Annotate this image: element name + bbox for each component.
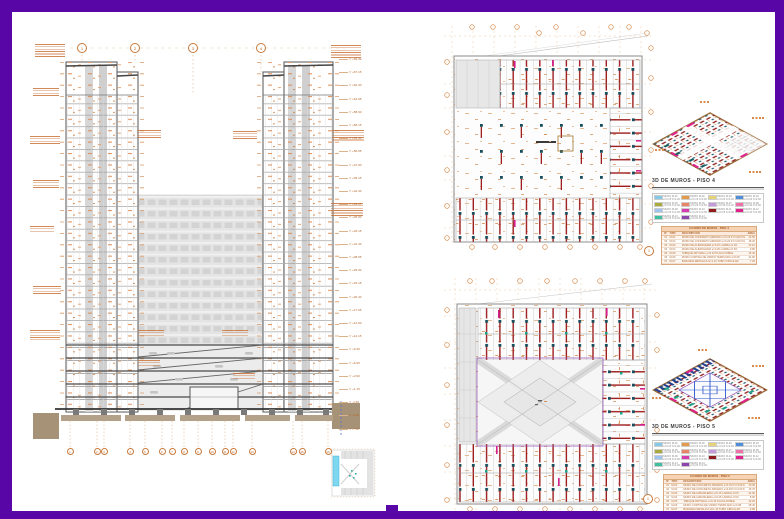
legend-sub-line: e=0.30 h=3.00 [744, 459, 761, 462]
grid-bubble: 3 [188, 43, 198, 53]
axon-leader-label [698, 349, 708, 351]
note-block [30, 226, 54, 233]
level-value: ▽ +42.40 [349, 190, 361, 193]
level-leader [339, 72, 348, 73]
level-marker: ▽ +64.40 [339, 84, 373, 87]
legend-swatch [682, 203, 689, 206]
grid-bubble: 10 [209, 448, 216, 455]
level-value: ▽ +69.90 [349, 58, 361, 61]
pool-shape [333, 456, 339, 486]
legend-item: MURO M-04e=0.20 h=2.60 [736, 196, 761, 201]
level-marker: ▽ +14.90 [339, 322, 373, 325]
legend-swatch [736, 443, 743, 446]
legend-label: MURO M-02e=0.15 h=2.60 [690, 196, 707, 201]
drawing-sheet: 3D DE MUROS - PISO 4 3D DE MUROS - PISO … [0, 0, 784, 519]
table-cell: 04 [662, 248, 670, 251]
table-cell: 06 [664, 504, 671, 507]
level-marker: ▽ -1.60 [339, 401, 373, 404]
table-cell: M-06 [671, 504, 683, 507]
level-leader [339, 125, 348, 126]
table-cell: 15.40 [745, 252, 756, 255]
level-leader [339, 297, 348, 298]
legend-item: MURO M-08e=0.30 h=2.60 [736, 450, 761, 455]
level-value: ▽ +34.15 [349, 230, 361, 233]
legend-item: MURO M-06e=0.25 h=2.60 [682, 203, 707, 208]
legend-swatch [736, 196, 743, 199]
detail-marker: 1 [643, 494, 653, 504]
level-marker: ▽ +47.90 [339, 164, 373, 167]
axon-title-piso-4: 3D DE MUROS - PISO 4 [652, 178, 715, 184]
legend-swatch [736, 209, 743, 212]
level-leader [339, 349, 348, 350]
level-leader [339, 283, 348, 284]
table-cell: 01 [662, 236, 670, 239]
legend-item: MURO M-10e=0.20 h=3.00 [682, 456, 707, 461]
level-marker: ▽ +6.65 [339, 362, 373, 365]
legend-label: MURO M-14e=0.20 h=3.20 [690, 216, 707, 221]
floor-plan-piso-5 [440, 272, 665, 517]
sheet-border-top [0, 0, 784, 12]
legend-label: MURO M-01e=0.15 h=2.40 [663, 196, 680, 201]
axon-leader-label [749, 171, 761, 173]
legend-label: MURO M-09e=0.15 h=3.00 [663, 209, 680, 214]
legend-swatch [709, 443, 716, 446]
level-marker: ▽ -4.35 [339, 414, 373, 417]
legend-item: MURO M-13e=0.15 h=3.20 [655, 463, 680, 468]
legend-label: MURO M-04e=0.20 h=2.60 [744, 196, 761, 201]
level-value: ▽ +14.90 [349, 322, 361, 325]
legend-item: MURO M-13e=0.15 h=3.20 [655, 216, 680, 221]
level-marker: ▽ +17.65 [339, 309, 373, 312]
table-cell: M-02 [671, 488, 683, 491]
note-block [30, 136, 60, 145]
legend-swatch [709, 450, 716, 453]
level-value: ▽ +28.65 [349, 256, 361, 259]
table-cell: 22.10 [745, 244, 756, 247]
grid-bubble: 13 [249, 448, 256, 455]
sheet-border-left [0, 0, 12, 519]
legend-swatch [709, 196, 716, 199]
table-cell: 12.50 [745, 236, 756, 239]
level-marker: ▽ +20.40 [339, 296, 373, 299]
table-cell: 06 [662, 256, 670, 259]
legend-item: MURO M-07e=0.30 h=2.40 [709, 203, 734, 208]
level-value: ▽ +25.90 [349, 269, 361, 272]
axon-leader-label [700, 101, 710, 103]
wall-legend-top: MURO M-01e=0.15 h=2.40MURO M-02e=0.15 h=… [652, 193, 764, 223]
level-value: ▽ +1.15 [349, 388, 360, 391]
level-marker: ▽ +34.15 [339, 230, 373, 233]
legend-swatch [655, 456, 662, 459]
legend-label: MURO M-13e=0.15 h=3.20 [663, 463, 680, 468]
table-cell: 18.20 [745, 240, 756, 243]
level-marker: ▽ +67.15 [339, 71, 373, 74]
legend-label: MURO M-09e=0.15 h=3.00 [663, 456, 680, 461]
legend-swatch [709, 209, 716, 212]
legend-item: MURO M-03e=0.20 h=2.40 [709, 443, 734, 448]
grid-bubble: 2 [94, 448, 101, 455]
legend-label: MURO M-07e=0.30 h=2.40 [717, 203, 734, 208]
table-row: 07M-07BARANDA METALICA H=1.10 TUBO CIRCU… [662, 260, 756, 264]
level-value: ▽ +20.40 [349, 296, 361, 299]
legend-item: MURO M-04e=0.20 h=2.60 [736, 443, 761, 448]
legend-label: MURO M-05e=0.25 h=2.40 [663, 203, 680, 208]
note-block [138, 330, 164, 337]
table-cell: 03 [662, 244, 670, 247]
legend-sub-line: e=0.15 h=3.20 [663, 465, 680, 468]
legend-swatch [655, 196, 662, 199]
level-leader [339, 336, 348, 337]
level-value: ▽ +58.90 [349, 111, 361, 114]
table-cell: 05 [664, 500, 671, 503]
level-marker: ▽ +69.90 [339, 58, 373, 61]
level-value: ▽ +39.65 [349, 203, 361, 206]
level-leader [339, 389, 348, 390]
level-value: ▽ +61.65 [349, 98, 361, 101]
legend-item: MURO M-07e=0.30 h=2.40 [709, 450, 734, 455]
level-value: ▽ +9.40 [349, 348, 360, 351]
detail-marker: 1 [644, 246, 654, 256]
grid-bubble: 9 [195, 448, 202, 455]
table-header-cell: DESCRIPCIÓN [683, 480, 745, 483]
axon-title-piso-5: 3D DE MUROS - PISO 5 [652, 424, 715, 430]
grid-bubble: 1 [77, 43, 87, 53]
title-rule [652, 187, 764, 188]
table-cell: 7.25 [745, 260, 756, 263]
table-header-cell: TIPO [670, 232, 682, 235]
legend-swatch [655, 209, 662, 212]
level-leader [339, 270, 348, 271]
table-cell: MURO DE ALBAÑILERIA e=0.15 LADRILLO KK [682, 244, 745, 247]
level-marker: ▽ +45.15 [339, 177, 373, 180]
grid-bubble: 12 [230, 448, 237, 455]
table-cell: MURO CORTINA DE VIDRIO TEMPLADO e=0.08 [682, 256, 745, 259]
table-cell: M-06 [670, 256, 682, 259]
note-block [33, 286, 61, 294]
table-cell: M-01 [671, 484, 683, 487]
level-value: ▽ +17.65 [349, 309, 361, 312]
level-leader [339, 376, 348, 377]
left-tower [62, 62, 142, 412]
wall-table-bottom: CUADRO DE MUROS - PISO 5N°TIPODESCRIPCIÓ… [663, 474, 757, 513]
legend-swatch [655, 450, 662, 453]
level-marker: ▽ +42.40 [339, 190, 373, 193]
legend-label: MURO M-03e=0.20 h=2.40 [717, 443, 734, 448]
legend-swatch [682, 456, 689, 459]
level-leader [339, 138, 348, 139]
table-cell: MURO DE ALBAÑILERIA e=0.25 LADRILLO KK [683, 496, 745, 499]
axon-leader-label [748, 417, 760, 419]
level-value: ▽ +12.15 [349, 335, 361, 338]
legend-item: MURO M-05e=0.25 h=2.40 [655, 203, 680, 208]
table-cell: 24.60 [745, 492, 756, 495]
table-cell: 04 [664, 496, 671, 499]
table-cell: M-02 [670, 240, 682, 243]
table-header-cell: ÁREA [745, 232, 756, 235]
table-header-cell: TIPO [671, 480, 683, 483]
level-marker: ▽ +56.15 [339, 124, 373, 127]
legend-swatch [682, 450, 689, 453]
note-block [35, 44, 65, 57]
note-block [137, 130, 161, 139]
axon-leader-label [752, 365, 764, 367]
legend-swatch [682, 196, 689, 199]
legend-sub-line: e=0.25 h=3.00 [717, 459, 734, 462]
legend-label: MURO M-07e=0.30 h=2.40 [717, 450, 734, 455]
key-plan [331, 444, 377, 498]
level-marker: ▽ +50.65 [339, 150, 373, 153]
level-value: ▽ +31.40 [349, 243, 361, 246]
level-leader [339, 415, 348, 416]
legend-label: MURO M-08e=0.30 h=2.60 [744, 203, 761, 208]
table-cell: 16.75 [745, 488, 756, 491]
table-cell: MURO DE CONCRETO ARMADO e=0.15 F'C=210 K… [682, 236, 745, 239]
legend-swatch [736, 203, 743, 206]
table-cell: MURO DE CONCRETO ARMADO e=0.20 F'C=210 K… [682, 240, 745, 243]
legend-label: MURO M-01e=0.15 h=2.40 [663, 443, 680, 448]
legend-swatch [655, 443, 662, 446]
level-value: ▽ +64.40 [349, 84, 361, 87]
legend-item: MURO M-09e=0.15 h=3.00 [655, 209, 680, 214]
legend-label: MURO M-11e=0.25 h=3.00 [717, 456, 734, 461]
building-section-drawing [25, 35, 445, 505]
legend-item: MURO M-06e=0.25 h=2.60 [682, 450, 707, 455]
legend-item: MURO M-02e=0.15 h=2.60 [682, 443, 707, 448]
legend-item: MURO M-03e=0.20 h=2.40 [709, 196, 734, 201]
legend-item: MURO M-12e=0.30 h=3.00 [736, 456, 761, 461]
legend-item: MURO M-01e=0.15 h=2.40 [655, 196, 680, 201]
level-value: ▽ +23.15 [349, 282, 361, 285]
legend-label: MURO M-05e=0.25 h=2.40 [663, 450, 680, 455]
legend-label: MURO M-02e=0.15 h=2.60 [690, 443, 707, 448]
grid-bubble: 8 [181, 448, 188, 455]
level-leader [339, 204, 348, 205]
table-cell: TABIQUE DRYWALL e=0.10 PLACA DOBLE [682, 252, 745, 255]
legend-item: MURO M-08e=0.30 h=2.60 [736, 203, 761, 208]
sheet-border-tab [386, 505, 398, 513]
note-block [33, 88, 59, 96]
legend-swatch [682, 216, 689, 219]
table-cell: MURO DE CONCRETO ARMADO e=0.20 F'C=210 K… [683, 488, 745, 491]
level-marker: ▽ +23.15 [339, 282, 373, 285]
legend-sub-line: e=0.15 h=3.20 [663, 218, 680, 221]
level-leader [339, 429, 348, 430]
level-marker: ▽ +28.65 [339, 256, 373, 259]
axon-leader-label [655, 149, 665, 151]
level-value: ▽ -7.10 [349, 428, 359, 431]
legend-swatch [682, 209, 689, 212]
level-value: ▽ +53.40 [349, 137, 361, 140]
table-cell: 05 [662, 252, 670, 255]
legend-sub-line: e=0.30 h=3.00 [744, 212, 761, 215]
table-cell: M-05 [671, 500, 683, 503]
legend-swatch [655, 203, 662, 206]
level-value: ▽ +47.90 [349, 164, 361, 167]
axon-leader-label [652, 397, 662, 399]
level-leader [339, 191, 348, 192]
legend-label: MURO M-10e=0.20 h=3.00 [690, 209, 707, 214]
note-block [138, 360, 160, 366]
level-value: ▽ +6.65 [349, 362, 360, 365]
level-leader [339, 85, 348, 86]
legend-item: MURO M-05e=0.25 h=2.40 [655, 450, 680, 455]
legend-swatch [709, 456, 716, 459]
grid-bubble: 3 [101, 448, 108, 455]
table-cell: M-04 [671, 496, 683, 499]
table-cell: M-04 [670, 248, 682, 251]
table-cell: 03 [664, 492, 671, 495]
grid-bubble: 4 [256, 43, 266, 53]
table-cell: 13.20 [745, 500, 756, 503]
legend-item: MURO M-09e=0.15 h=3.00 [655, 456, 680, 461]
legend-item: MURO M-14e=0.20 h=3.20 [682, 216, 707, 221]
grid-bubble: 5 [142, 448, 149, 455]
legend-swatch [682, 463, 689, 466]
table-header-cell: N° [662, 232, 670, 235]
legend-label: MURO M-06e=0.25 h=2.60 [690, 203, 707, 208]
grid-bubble: 6 [159, 448, 166, 455]
axon-3d-piso-5 [645, 346, 775, 434]
level-leader [339, 323, 348, 324]
level-marker: ▽ +53.40 [339, 137, 373, 140]
legend-label: MURO M-06e=0.25 h=2.60 [690, 450, 707, 455]
level-marker: ▽ +25.90 [339, 269, 373, 272]
legend-label: MURO M-12e=0.30 h=3.00 [744, 209, 761, 214]
note-block [33, 180, 59, 188]
legend-item: MURO M-14e=0.20 h=3.20 [682, 463, 707, 468]
right-tower [259, 62, 337, 412]
legend-item: MURO M-11e=0.25 h=3.00 [709, 209, 734, 214]
legend-label: MURO M-13e=0.15 h=3.20 [663, 216, 680, 221]
table-header-cell: ÁREA [745, 480, 756, 483]
level-marker: ▽ -7.10 [339, 428, 373, 431]
legend-sub-line: e=0.25 h=3.00 [717, 212, 734, 215]
legend-swatch [655, 216, 662, 219]
level-value: ▽ +67.15 [349, 71, 361, 74]
table-cell: M-05 [670, 252, 682, 255]
grid-bubble: 14 [290, 448, 297, 455]
table-cell: TABIQUE DRYWALL e=0.10 PLACA DOBLE [683, 500, 745, 503]
legend-label: MURO M-10e=0.20 h=3.00 [690, 456, 707, 461]
level-value: ▽ +50.65 [349, 150, 361, 153]
grid-bubble: 16 [325, 448, 332, 455]
legend-item: MURO M-02e=0.15 h=2.60 [682, 196, 707, 201]
table-cell: MURO DE CONCRETO ARMADO e=0.15 F'C=210 K… [683, 484, 745, 487]
level-leader [339, 310, 348, 311]
table-header-cell: DESCRIPCIÓN [682, 232, 745, 235]
title-rule [652, 433, 764, 434]
level-marker: ▽ +39.65 [339, 203, 373, 206]
table-cell: MURO CORTINA DE VIDRIO TEMPLADO e=0.08 [683, 504, 745, 507]
legend-sub-line: e=0.20 h=3.20 [690, 465, 707, 468]
table-cell: 10.30 [745, 484, 756, 487]
level-marker: ▽ +58.90 [339, 111, 373, 114]
level-marker: ▽ +3.90 [339, 375, 373, 378]
table-cell: 02 [664, 488, 671, 491]
level-value: ▽ +45.15 [349, 177, 361, 180]
legend-item: MURO M-11e=0.25 h=3.00 [709, 456, 734, 461]
table-cell: M-03 [671, 492, 683, 495]
axon-leader-label [752, 117, 764, 119]
grid-bubble: 4 [127, 448, 134, 455]
level-marker: ▽ +1.15 [339, 388, 373, 391]
table-cell: 8.90 [745, 496, 756, 499]
table-cell: 02 [662, 240, 670, 243]
grid-bubble: 2 [130, 43, 140, 53]
table-cell: M-03 [670, 244, 682, 247]
wall-legend-bottom: MURO M-01e=0.15 h=2.40MURO M-02e=0.15 h=… [652, 440, 764, 470]
wall-table-top: CUADRO DE MUROS - PISO 4N°TIPODESCRIPCIÓ… [661, 226, 757, 265]
level-leader [339, 178, 348, 179]
level-value: ▽ +56.15 [349, 124, 361, 127]
legend-item: MURO M-12e=0.30 h=3.00 [736, 209, 761, 214]
level-leader [339, 59, 348, 60]
grid-bubble: 1 [67, 448, 74, 455]
table-cell: MURO DE ALBAÑILERIA e=0.25 LADRILLO KK [682, 248, 745, 251]
level-leader [339, 231, 348, 232]
table-cell: 01 [664, 484, 671, 487]
grid-leaders [70, 421, 328, 447]
legend-sub-line: e=0.20 h=3.20 [690, 218, 707, 221]
table-cell: M-07 [670, 260, 682, 263]
level-leader [339, 217, 348, 218]
table-cell: 31.60 [745, 256, 756, 259]
level-leader [339, 244, 348, 245]
legend-swatch [736, 456, 743, 459]
legend-label: MURO M-14e=0.20 h=3.20 [690, 463, 707, 468]
level-marker: ▽ +31.40 [339, 243, 373, 246]
table-cell: 28.40 [745, 504, 756, 507]
sheet-border-right [775, 0, 784, 519]
level-leader [339, 165, 348, 166]
axon-3d-piso-4 [646, 100, 774, 188]
table-cell: 9.80 [745, 248, 756, 251]
table-cell: 07 [662, 260, 670, 263]
level-leader [339, 151, 348, 152]
level-value: ▽ +36.90 [349, 216, 361, 219]
table-cell: MURO DE ALBAÑILERIA e=0.15 LADRILLO KK [683, 492, 745, 495]
note-block [222, 330, 248, 337]
legend-label: MURO M-12e=0.30 h=3.00 [744, 456, 761, 461]
level-value: ▽ -1.60 [349, 401, 359, 404]
legend-swatch [709, 203, 716, 206]
level-leader [339, 363, 348, 364]
level-leader [339, 99, 348, 100]
level-marker: ▽ +9.40 [339, 348, 373, 351]
courtyard [478, 360, 602, 444]
level-leader [339, 112, 348, 113]
legend-item: MURO M-10e=0.20 h=3.00 [682, 209, 707, 214]
legend-swatch [736, 450, 743, 453]
table-header-cell: N° [664, 480, 671, 483]
note-block [233, 131, 257, 140]
legend-label: MURO M-11e=0.25 h=3.00 [717, 209, 734, 214]
legend-label: MURO M-03e=0.20 h=2.40 [717, 196, 734, 201]
grid-bubble: 7 [169, 448, 176, 455]
note-block [233, 373, 255, 379]
floor-plan-piso-4 [440, 20, 655, 250]
legend-label: MURO M-04e=0.20 h=2.60 [744, 443, 761, 448]
level-marker: ▽ +36.90 [339, 216, 373, 219]
table-cell: BARANDA METALICA H=1.10 TUBO CIRCULAR [682, 260, 745, 263]
level-marker: ▽ +61.65 [339, 98, 373, 101]
legend-label: MURO M-08e=0.30 h=2.60 [744, 450, 761, 455]
legend-swatch [682, 443, 689, 446]
table-cell: M-01 [670, 236, 682, 239]
level-value: ▽ -4.35 [349, 414, 359, 417]
level-leader [339, 402, 348, 403]
legend-swatch [655, 463, 662, 466]
